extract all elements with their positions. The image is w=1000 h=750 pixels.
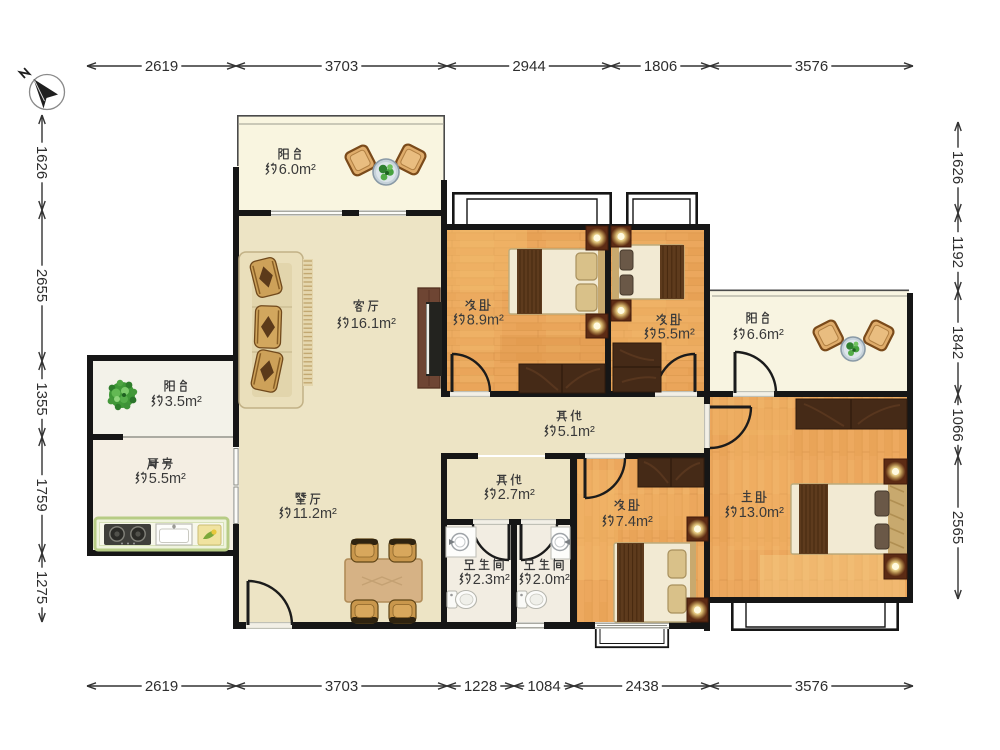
svg-text:5.5m²: 5.5m² <box>149 471 186 487</box>
svg-text:3576: 3576 <box>795 58 828 75</box>
svg-text:2.3m²: 2.3m² <box>473 572 510 588</box>
svg-text:2944: 2944 <box>512 58 545 75</box>
svg-text:13.0m²: 13.0m² <box>739 505 784 521</box>
svg-text:3703: 3703 <box>325 678 358 695</box>
svg-text:1275: 1275 <box>33 571 50 604</box>
svg-text:1759: 1759 <box>33 478 50 511</box>
svg-text:6.0m²: 6.0m² <box>279 162 316 178</box>
svg-text:6.6m²: 6.6m² <box>747 327 784 343</box>
svg-text:2438: 2438 <box>625 678 658 695</box>
svg-text:3576: 3576 <box>795 678 828 695</box>
svg-text:7.4m²: 7.4m² <box>616 514 653 530</box>
svg-text:1066: 1066 <box>949 408 966 441</box>
svg-text:1192: 1192 <box>949 236 966 268</box>
svg-text:2565: 2565 <box>949 511 966 544</box>
svg-text:1626: 1626 <box>33 146 50 179</box>
svg-text:1626: 1626 <box>949 151 966 184</box>
svg-text:2.0m²: 2.0m² <box>533 572 570 588</box>
svg-text:2.7m²: 2.7m² <box>498 487 535 503</box>
svg-text:8.9m²: 8.9m² <box>467 313 504 329</box>
svg-text:1355: 1355 <box>33 382 50 415</box>
svg-text:1842: 1842 <box>949 326 966 359</box>
svg-text:1084: 1084 <box>527 678 560 695</box>
svg-text:5.5m²: 5.5m² <box>658 327 695 343</box>
svg-text:11.2m²: 11.2m² <box>293 506 337 522</box>
svg-text:2619: 2619 <box>145 58 178 75</box>
svg-text:2655: 2655 <box>33 269 50 302</box>
svg-text:3.5m²: 3.5m² <box>165 394 202 410</box>
svg-text:1806: 1806 <box>644 58 677 75</box>
svg-text:16.1m²: 16.1m² <box>351 316 396 332</box>
svg-text:1228: 1228 <box>464 678 497 695</box>
svg-text:3703: 3703 <box>325 58 358 75</box>
svg-text:5.1m²: 5.1m² <box>558 424 595 440</box>
svg-text:2619: 2619 <box>145 678 178 695</box>
